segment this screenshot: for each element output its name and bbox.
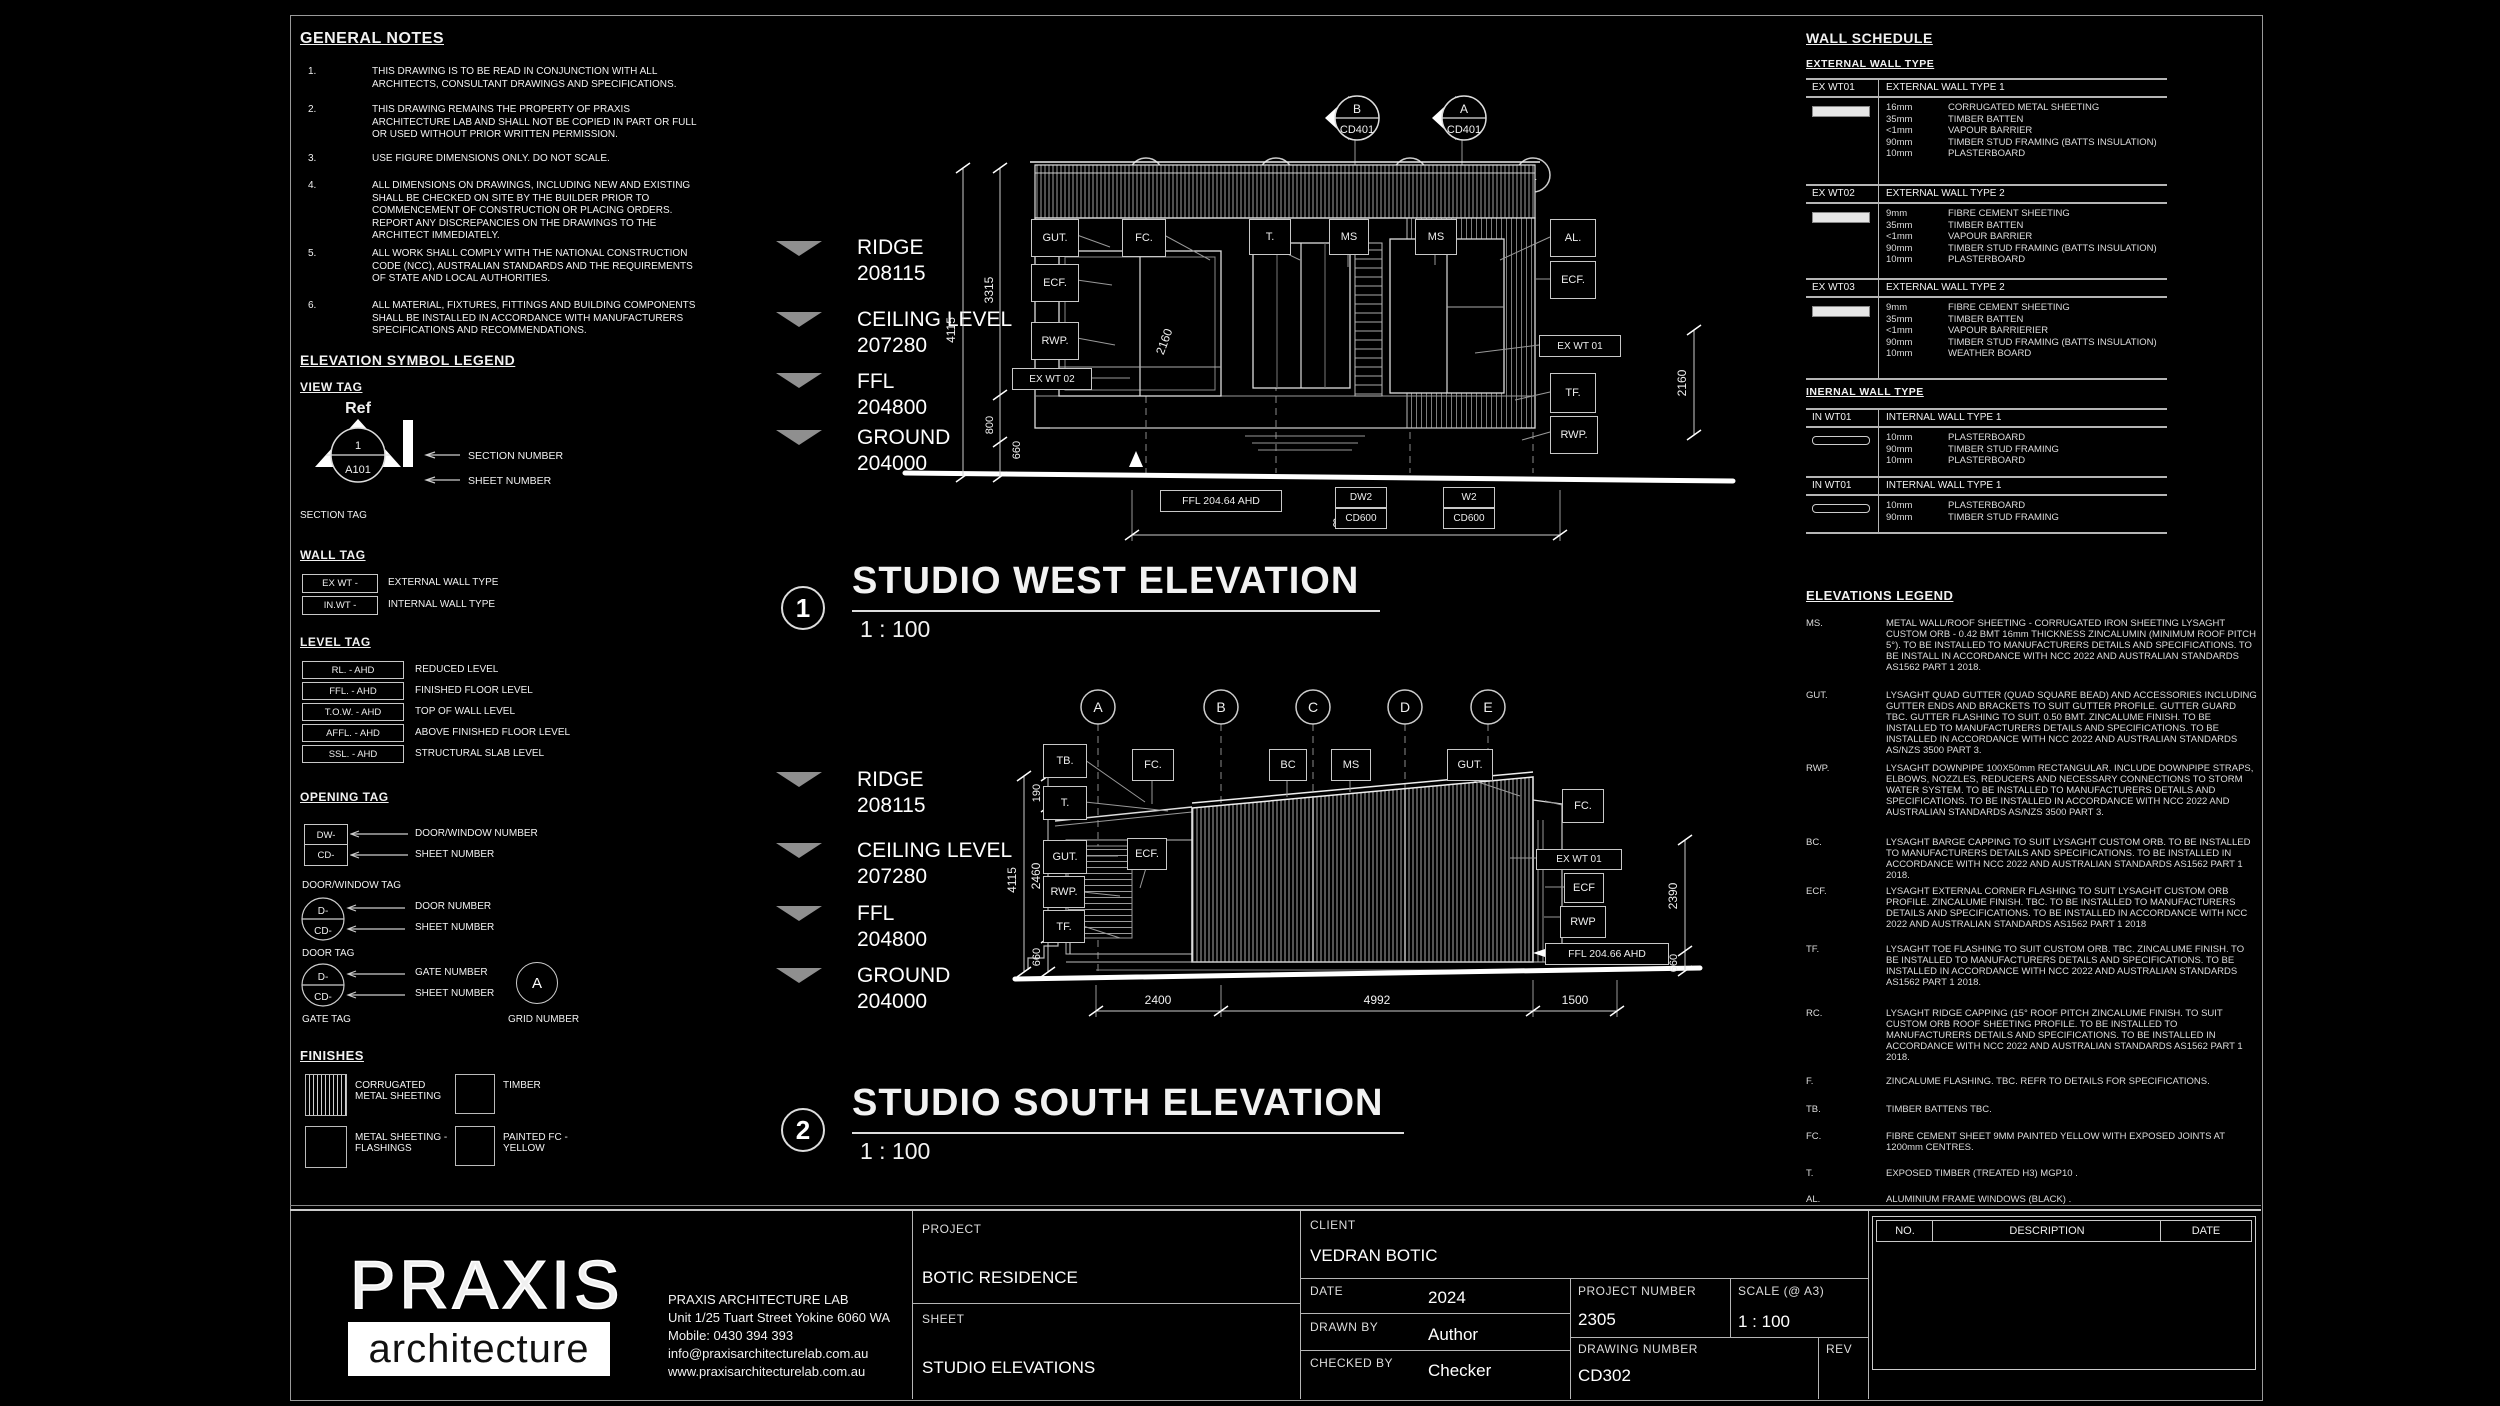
sheet-label: SHEET (922, 1312, 965, 1326)
level-marker-icon (776, 906, 822, 921)
callout-gut: GUT. (1031, 219, 1079, 257)
level-marker-icon (776, 772, 822, 787)
note-num: 3. (308, 153, 316, 164)
callout-fc: FC. (1132, 749, 1174, 781)
section-sheet: CD401 (1447, 124, 1481, 136)
level-tag-label: TOP OF WALL LEVEL (415, 706, 515, 717)
legend-text: LYSAGHT EXTERNAL CORNER FLASHING TO SUIT… (1886, 886, 2258, 930)
south-elevation-scale: 1 : 100 (860, 1138, 930, 1165)
view-tag-title: VIEW TAG (300, 380, 362, 394)
note-text: USE FIGURE DIMENSIONS ONLY. DO NOT SCALE… (372, 153, 702, 166)
finish-label: TIMBER (503, 1080, 593, 1091)
tag-cd600: CD600 (1335, 508, 1387, 529)
wall-type-name: INTERNAL WALL TYPE 1 (1886, 480, 2001, 491)
external-wall-type-heading: EXTERNAL WALL TYPE (1806, 58, 1934, 70)
wall-layers: 16mmCORRUGATED METAL SHEETING 35mmTIMBER… (1886, 102, 2157, 160)
callout-rwp: RWP. (1031, 322, 1079, 360)
finish-label: CORRUGATED METAL SHEETING (355, 1080, 450, 1102)
wall-swatch (1812, 504, 1870, 513)
legend-text: EXPOSED TIMBER (TREATED H3) MGP10 . (1886, 1168, 2258, 1179)
south-elevation-title: STUDIO SOUTH ELEVATION (852, 1082, 1384, 1125)
note-text: THIS DRAWING REMAINS THE PROPERTY OF PRA… (372, 104, 702, 142)
legend-key: TF. (1806, 944, 1819, 955)
level-tag-label: REDUCED LEVEL (415, 664, 498, 675)
wall-layers: 9mmFIBRE CEMENT SHEETING 35mmTIMBER BATT… (1886, 302, 2157, 360)
legend-key: AL. (1806, 1194, 1820, 1205)
callout-ecf: ECF. (1031, 264, 1079, 302)
dim-2460: 2460 (1029, 862, 1043, 889)
note-num: 6. (308, 300, 316, 311)
legend-key: T. (1806, 1168, 1813, 1179)
gate-number-label: GATE NUMBER (415, 967, 488, 978)
wall-tag-title: WALL TAG (300, 548, 366, 562)
dim-660: 660 (1031, 948, 1043, 966)
title-underline (852, 1132, 1404, 1134)
dim-800: 800 (984, 416, 996, 434)
legend-key: MS. (1806, 618, 1823, 629)
note-text: THIS DRAWING IS TO BE READ IN CONJUNCTIO… (372, 66, 702, 91)
dim-190: 190 (1031, 784, 1043, 802)
wall-type-code: EX WT03 (1812, 282, 1855, 293)
scale-label: SCALE (@ A3) (1738, 1284, 1824, 1298)
drawing-number-value: CD302 (1578, 1366, 1631, 1386)
view-number: 1 (781, 586, 825, 630)
dim-2390: 2390 (1666, 882, 1680, 909)
checked-by-label: CHECKED BY (1310, 1356, 1393, 1370)
opening-tag-title: OPENING TAG (300, 790, 389, 804)
drawing-number-label: DRAWING NUMBER (1578, 1342, 1698, 1356)
client-value: VEDRAN BOTIC (1310, 1246, 1438, 1266)
note-num: 4. (308, 180, 316, 191)
level-marker-icon (776, 968, 822, 983)
callout-rwp: RWP. (1043, 876, 1085, 908)
title-underline (852, 610, 1380, 612)
view-number: 2 (781, 1108, 825, 1152)
rev-col-no: NO. (1876, 1220, 1934, 1242)
sheet-number-value: CD- (314, 926, 332, 937)
level-label: GROUND (857, 964, 950, 988)
grid-bubble: D (1400, 699, 1410, 715)
wall-type-name: INTERNAL WALL TYPE 1 (1886, 412, 2001, 423)
client-label: CLIENT (1310, 1218, 1356, 1232)
callout-ecf: ECF (1564, 873, 1604, 903)
tag-w2: W2 (1443, 487, 1495, 508)
callout-tf: TF. (1550, 373, 1596, 413)
door-number-label: DOOR NUMBER (415, 901, 491, 912)
note-text: ALL WORK SHALL COMPLY WITH THE NATIONAL … (372, 248, 702, 286)
callout-ex-wt-02: EX WT 02 (1012, 368, 1092, 390)
view-tag-symbol: Ref 1 A101 SECTION NUMBER SHEET NUMBER (300, 395, 660, 505)
dim-4992: 4992 (1364, 993, 1391, 1007)
legend-text: ZINCALUME FLASHING. TBC. REFR TO DETAILS… (1886, 1076, 2258, 1087)
callout-tb: TB. (1043, 744, 1087, 778)
callout-ecf: ECF. (1127, 838, 1167, 870)
sheet-number-label: SHEET NUMBER (468, 475, 552, 487)
logo-praxis-text: PRAXIS (350, 1247, 623, 1322)
finish-label: PAINTED FC - YELLOW (503, 1132, 593, 1154)
contact-line: www.praxisarchitecturelab.com.au (668, 1364, 865, 1379)
wall-layers: 10mmPLASTERBOARD 90mmTIMBER STUD FRAMING (1886, 500, 2059, 523)
opening-cd-box: CD- (304, 844, 348, 866)
callout-bc: BC (1269, 749, 1307, 781)
level-marker-icon (776, 843, 822, 858)
level-label: CEILING LEVEL (857, 839, 1012, 863)
wall-type-name: EXTERNAL WALL TYPE 2 (1886, 188, 2005, 199)
logo-architecture-box: architecture (348, 1322, 610, 1376)
gate-number-value: D- (318, 972, 329, 983)
drawing-sheet: GENERAL NOTES 1. THIS DRAWING IS TO BE R… (0, 0, 2500, 1406)
legend-key: GUT. (1806, 690, 1828, 701)
level-tag-box: RL. - AHD (302, 661, 404, 679)
legend-text: LYSAGHT RIDGE CAPPING (15° ROOF PITCH ZI… (1886, 1008, 2258, 1063)
callout-t: T. (1249, 219, 1291, 255)
grid-bubble: E (1483, 699, 1492, 715)
section-sheet: CD401 (1340, 124, 1374, 136)
wall-tag-ex-box: EX WT - (302, 574, 378, 593)
grid-number-caption: GRID NUMBER (508, 1014, 579, 1025)
legend-text: TIMBER BATTENS TBC. (1886, 1104, 2258, 1115)
view-tag-ref: Ref (345, 400, 371, 417)
elevations-legend-title: ELEVATIONS LEGEND (1806, 588, 1953, 603)
legend-text: LYSAGHT BARGE CAPPING TO SUIT LYSAGHT CU… (1886, 837, 2258, 881)
note-num: 2. (308, 104, 316, 115)
dim-4115: 4115 (1005, 867, 1019, 893)
wall-type-code: IN WT01 (1812, 480, 1851, 491)
wall-layers: 9mmFIBRE CEMENT SHEETING 35mmTIMBER BATT… (1886, 208, 2157, 266)
gate-tag-symbol: D- CD- (300, 962, 410, 1008)
level-label: FFL (857, 902, 894, 926)
legend-text: METAL WALL/ROOF SHEETING - CORRUGATED IR… (1886, 618, 2258, 673)
level-tag-label: FINISHED FLOOR LEVEL (415, 685, 533, 696)
opening-dw-box: DW- (304, 824, 348, 846)
rev-col-description: DESCRIPTION (1932, 1220, 2162, 1242)
finish-swatch-corrugated (305, 1074, 347, 1116)
internal-wall-type-heading: INERNAL WALL TYPE (1806, 386, 1924, 398)
project-label: PROJECT (922, 1222, 982, 1236)
grid-bubble: B (1216, 699, 1225, 715)
legend-key: BC. (1806, 837, 1822, 848)
legend-key: RC. (1806, 1008, 1822, 1019)
level-label: FFL (857, 370, 894, 394)
wall-tag-ex-label: EXTERNAL WALL TYPE (388, 577, 498, 588)
callout-ms: MS (1329, 219, 1369, 255)
callout-fc: FC. (1562, 789, 1604, 823)
note-num: 1. (308, 66, 316, 77)
section-number-label: SECTION NUMBER (468, 450, 564, 462)
dim-660-right: 660 (1668, 954, 1680, 972)
contact-line: Unit 1/25 Tuart Street Yokine 6060 WA (668, 1310, 890, 1325)
legend-key: F. (1806, 1076, 1813, 1087)
note-num: 5. (308, 248, 316, 259)
callout-al: AL. (1550, 219, 1596, 257)
callout-rwp: RWP (1560, 906, 1606, 938)
opening-dw-label: DOOR/WINDOW NUMBER (415, 828, 538, 839)
praxis-logo: PRAXIS (344, 1240, 624, 1322)
section-number-value: 1 (355, 440, 361, 452)
tag-dw2: DW2 (1335, 487, 1387, 508)
callout-t: T. (1043, 786, 1087, 820)
dim-4115: 4115 (944, 317, 958, 343)
legend-text: LYSAGHT DOWNPIPE 100X50mm RECTANGULAR. I… (1886, 763, 2258, 818)
contact-line: info@praxisarchitecturelab.com.au (668, 1346, 868, 1361)
callout-tf: TF. (1043, 910, 1085, 943)
dim-1500: 1500 (1562, 993, 1589, 1007)
tag-ffl: FFL 204.66 AHD (1545, 943, 1669, 965)
scale-value: 1 : 100 (1738, 1312, 1790, 1332)
section-letter: B (1353, 102, 1361, 116)
callout-gut: GUT. (1447, 749, 1493, 781)
contact-line: PRAXIS ARCHITECTURE LAB (668, 1292, 849, 1307)
west-elevation-scale: 1 : 100 (860, 616, 930, 643)
callout-rwp: RWP. (1550, 416, 1598, 454)
grid-bubble: A (1093, 699, 1103, 715)
level-marker-icon (776, 373, 822, 388)
level-tag-box: FFL. - AHD (302, 682, 404, 700)
date-value: 2024 (1428, 1288, 1466, 1308)
callout-ecf: ECF. (1550, 261, 1596, 299)
dim-660: 660 (1011, 441, 1023, 459)
callout-fc: FC. (1122, 219, 1166, 257)
section-letter: A (1460, 102, 1468, 116)
sheet-number-value: CD- (314, 992, 332, 1003)
level-tag-label: ABOVE FINISHED FLOOR LEVEL (415, 727, 570, 738)
grid-number-symbol: A (516, 962, 558, 1004)
legend-key: RWP. (1806, 763, 1829, 774)
legend-key: FC. (1806, 1131, 1821, 1142)
wall-layers: 10mmPLASTERBOARD 90mmTIMBER STUD FRAMING… (1886, 432, 2059, 467)
sheet-number-label: SHEET NUMBER (415, 922, 494, 933)
level-marker-icon (776, 430, 822, 445)
legend-key: TB. (1806, 1104, 1821, 1115)
grid-bubble: C (1308, 699, 1318, 715)
tag-cd600: CD600 (1443, 508, 1495, 529)
wall-swatch (1812, 106, 1870, 117)
general-notes-title: GENERAL NOTES (300, 30, 444, 48)
wall-type-code: IN WT01 (1812, 412, 1851, 423)
opening-cd-label: SHEET NUMBER (415, 849, 494, 860)
wall-swatch (1812, 436, 1870, 445)
date-label: DATE (1310, 1284, 1343, 1298)
level-value: 204000 (857, 990, 927, 1014)
legend-text: FIBRE CEMENT SHEET 9MM PAINTED YELLOW WI… (1886, 1131, 2258, 1153)
legend-text: LYSAGHT TOE FLASHING TO SUIT CUSTOM ORB.… (1886, 944, 2258, 988)
gate-tag-caption: GATE TAG (302, 1014, 351, 1025)
finish-label: METAL SHEETING - FLASHINGS (355, 1132, 455, 1154)
finish-swatch-painted-fc (455, 1126, 495, 1166)
opening-tag-arrows (350, 824, 410, 866)
callout-ex-wt-01: EX WT 01 (1536, 849, 1622, 870)
sheet-value: STUDIO ELEVATIONS (922, 1358, 1095, 1378)
contact-line: Mobile: 0430 394 393 (668, 1328, 793, 1343)
level-tag-box: AFFL. - AHD (302, 724, 404, 742)
callout-gut: GUT. (1043, 840, 1087, 874)
section-tag-caption: SECTION TAG (300, 510, 367, 521)
dim-3315: 3315 (982, 276, 996, 303)
finish-swatch-flashings (305, 1126, 347, 1168)
level-value: 204800 (857, 928, 927, 952)
note-text: ALL MATERIAL, FIXTURES, FITTINGS AND BUI… (372, 300, 702, 338)
grid-number-value: A (532, 975, 542, 992)
callout-ms: MS (1415, 219, 1457, 255)
west-elevation-title: STUDIO WEST ELEVATION (852, 560, 1359, 603)
wall-type-code: EX WT02 (1812, 188, 1855, 199)
door-window-tag-symbol: D- CD- (300, 896, 410, 942)
south-elevation-drawing: A B C D E (1000, 680, 1780, 1110)
dim-2400: 2400 (1145, 993, 1172, 1007)
level-value: 208115 (857, 794, 926, 818)
wall-tag-in-box: IN.WT - (302, 596, 378, 615)
wall-swatch (1812, 306, 1870, 317)
callout-ex-wt-01: EX WT 01 (1539, 335, 1621, 357)
level-marker-icon (776, 312, 822, 327)
door-window-tag-caption: DOOR/WINDOW TAG (302, 880, 401, 891)
level-label: RIDGE (857, 768, 924, 792)
level-tag-title: LEVEL TAG (300, 635, 371, 649)
wall-type-code: EX WT01 (1812, 82, 1855, 93)
project-value: BOTIC RESIDENCE (922, 1268, 1078, 1288)
wall-type-name: EXTERNAL WALL TYPE 2 (1886, 282, 2005, 293)
wall-tag-in-label: INTERNAL WALL TYPE (388, 599, 495, 610)
callout-ms: MS (1331, 749, 1371, 781)
legend-key: ECF. (1806, 886, 1827, 897)
logo-architecture-text: architecture (369, 1327, 590, 1372)
level-value: 207280 (857, 865, 927, 889)
symbol-legend-title: ELEVATION SYMBOL LEGEND (300, 352, 515, 368)
rev-label: REV (1826, 1342, 1852, 1356)
dim-2160-right: 2160 (1675, 369, 1689, 396)
note-text: ALL DIMENSIONS ON DRAWINGS, INCLUDING NE… (372, 180, 702, 243)
legend-text: ALUMINIUM FRAME WINDOWS (BLACK) . (1886, 1194, 2258, 1205)
door-tag-caption: DOOR TAG (302, 948, 354, 959)
rev-col-date: DATE (2160, 1220, 2252, 1242)
wall-swatch (1812, 212, 1870, 223)
wall-schedule-title: WALL SCHEDULE (1806, 30, 1933, 46)
level-tag-box: SSL. - AHD (302, 745, 404, 763)
sheet-number-value: A101 (345, 464, 371, 476)
door-number-value: D- (318, 906, 329, 917)
project-number-value: 2305 (1578, 1310, 1616, 1330)
tag-ffl: FFL 204.64 AHD (1160, 490, 1282, 512)
drawn-by-value: Author (1428, 1325, 1478, 1345)
level-tag-label: STRUCTURAL SLAB LEVEL (415, 748, 544, 759)
checked-by-value: Checker (1428, 1361, 1491, 1381)
wall-type-name: EXTERNAL WALL TYPE 1 (1886, 82, 2005, 93)
legend-text: LYSAGHT QUAD GUTTER (QUAD SQUARE BEAD) A… (1886, 690, 2258, 756)
finishes-title: FINISHES (300, 1048, 364, 1063)
level-tag-box: T.O.W. - AHD (302, 703, 404, 721)
project-number-label: PROJECT NUMBER (1578, 1284, 1696, 1298)
finish-swatch-timber (455, 1074, 495, 1114)
sheet-number-label: SHEET NUMBER (415, 988, 494, 999)
drawn-by-label: DRAWN BY (1310, 1320, 1378, 1334)
level-marker-icon (776, 241, 822, 256)
